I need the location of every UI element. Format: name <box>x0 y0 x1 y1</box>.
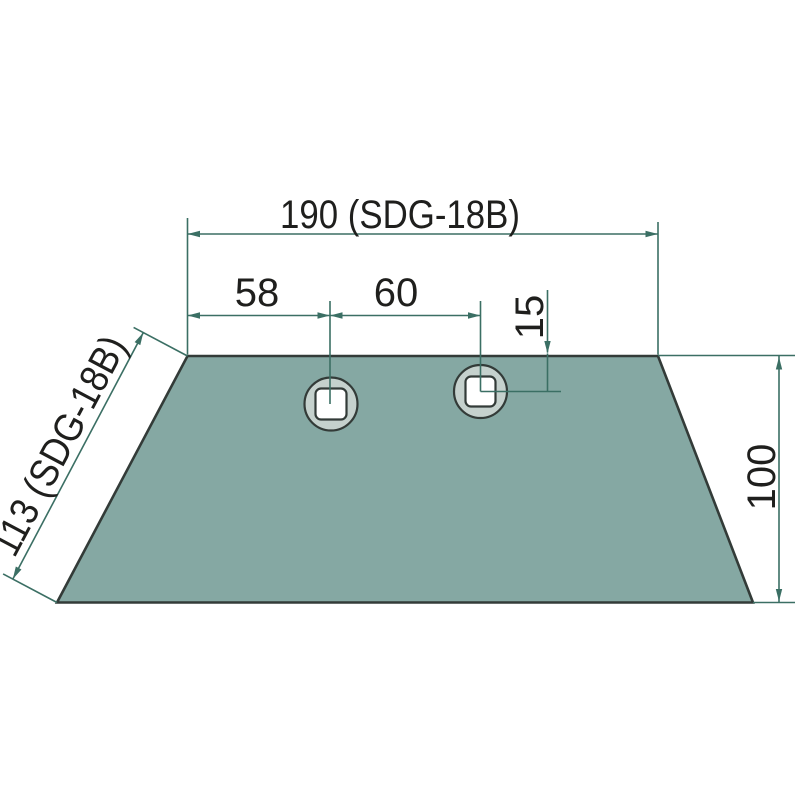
plow-share-technical-drawing: 190 (SDG-18B) 58 60 15 <box>0 0 800 800</box>
arrow-left-icon <box>188 231 201 237</box>
arrow-up-icon <box>776 357 782 370</box>
dimension-label-top-width: 190 (SDG-18B) <box>280 193 520 237</box>
extension-line <box>134 327 188 356</box>
dimension-label-hole-depth: 15 <box>508 295 552 340</box>
part-body <box>57 356 753 603</box>
dimension-label-hole-offset: 58 <box>235 271 280 315</box>
arrow-right-icon <box>468 312 481 318</box>
arrow-right-icon <box>646 231 659 237</box>
dimension-label-right-height: 100 <box>740 444 784 511</box>
arrow-down-icon <box>544 341 550 354</box>
dimension-hole-offset: 58 <box>188 271 331 319</box>
arrow-left-icon <box>330 312 343 318</box>
dimension-label-hole-spacing: 60 <box>374 271 419 315</box>
bolt-hole-left-square <box>316 389 347 420</box>
arrow-right-icon <box>318 312 331 318</box>
extension-line <box>3 574 57 603</box>
blade-outline <box>57 356 753 603</box>
arrow-left-icon <box>188 312 201 318</box>
technical-drawing-canvas: 190 (SDG-18B) 58 60 15 <box>0 0 800 800</box>
arrow-down-icon <box>776 589 782 602</box>
